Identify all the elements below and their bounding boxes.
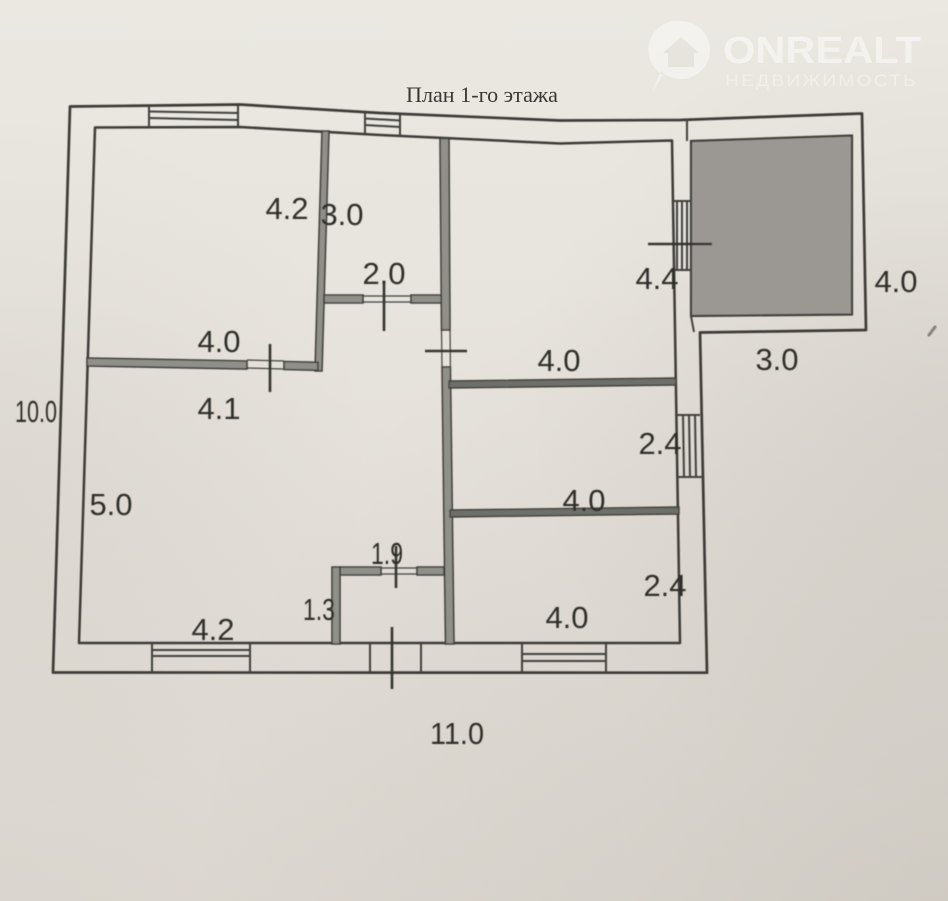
svg-text:1.3: 1.3 <box>303 592 335 627</box>
svg-text:2.0: 2.0 <box>362 256 405 291</box>
svg-text:4.2: 4.2 <box>191 612 234 647</box>
svg-text:5.0: 5.0 <box>89 487 132 522</box>
svg-text:4.4: 4.4 <box>635 261 678 296</box>
svg-text:4.0: 4.0 <box>545 600 588 635</box>
svg-text:11.0: 11.0 <box>430 716 484 751</box>
svg-text:4.0: 4.0 <box>562 483 605 518</box>
svg-text:4.0: 4.0 <box>874 264 917 299</box>
svg-text:10.0: 10.0 <box>15 394 57 429</box>
svg-text:4.0: 4.0 <box>197 324 240 359</box>
svg-text:3.0: 3.0 <box>320 197 363 232</box>
svg-text:2.4: 2.4 <box>643 568 686 603</box>
svg-text:План 1-го этажа: План 1-го этажа <box>406 82 558 107</box>
svg-text:4.2: 4.2 <box>265 191 308 226</box>
svg-text:4.0: 4.0 <box>537 343 580 378</box>
svg-text:4.1: 4.1 <box>197 391 240 426</box>
svg-text:НЕДВИЖИМОСТЬ: НЕДВИЖИМОСТЬ <box>725 71 918 90</box>
svg-text:ONREALT: ONREALT <box>723 30 921 72</box>
svg-text:3.0: 3.0 <box>755 342 798 377</box>
svg-text:2.4: 2.4 <box>638 426 681 461</box>
svg-text:1.9: 1.9 <box>371 536 403 571</box>
